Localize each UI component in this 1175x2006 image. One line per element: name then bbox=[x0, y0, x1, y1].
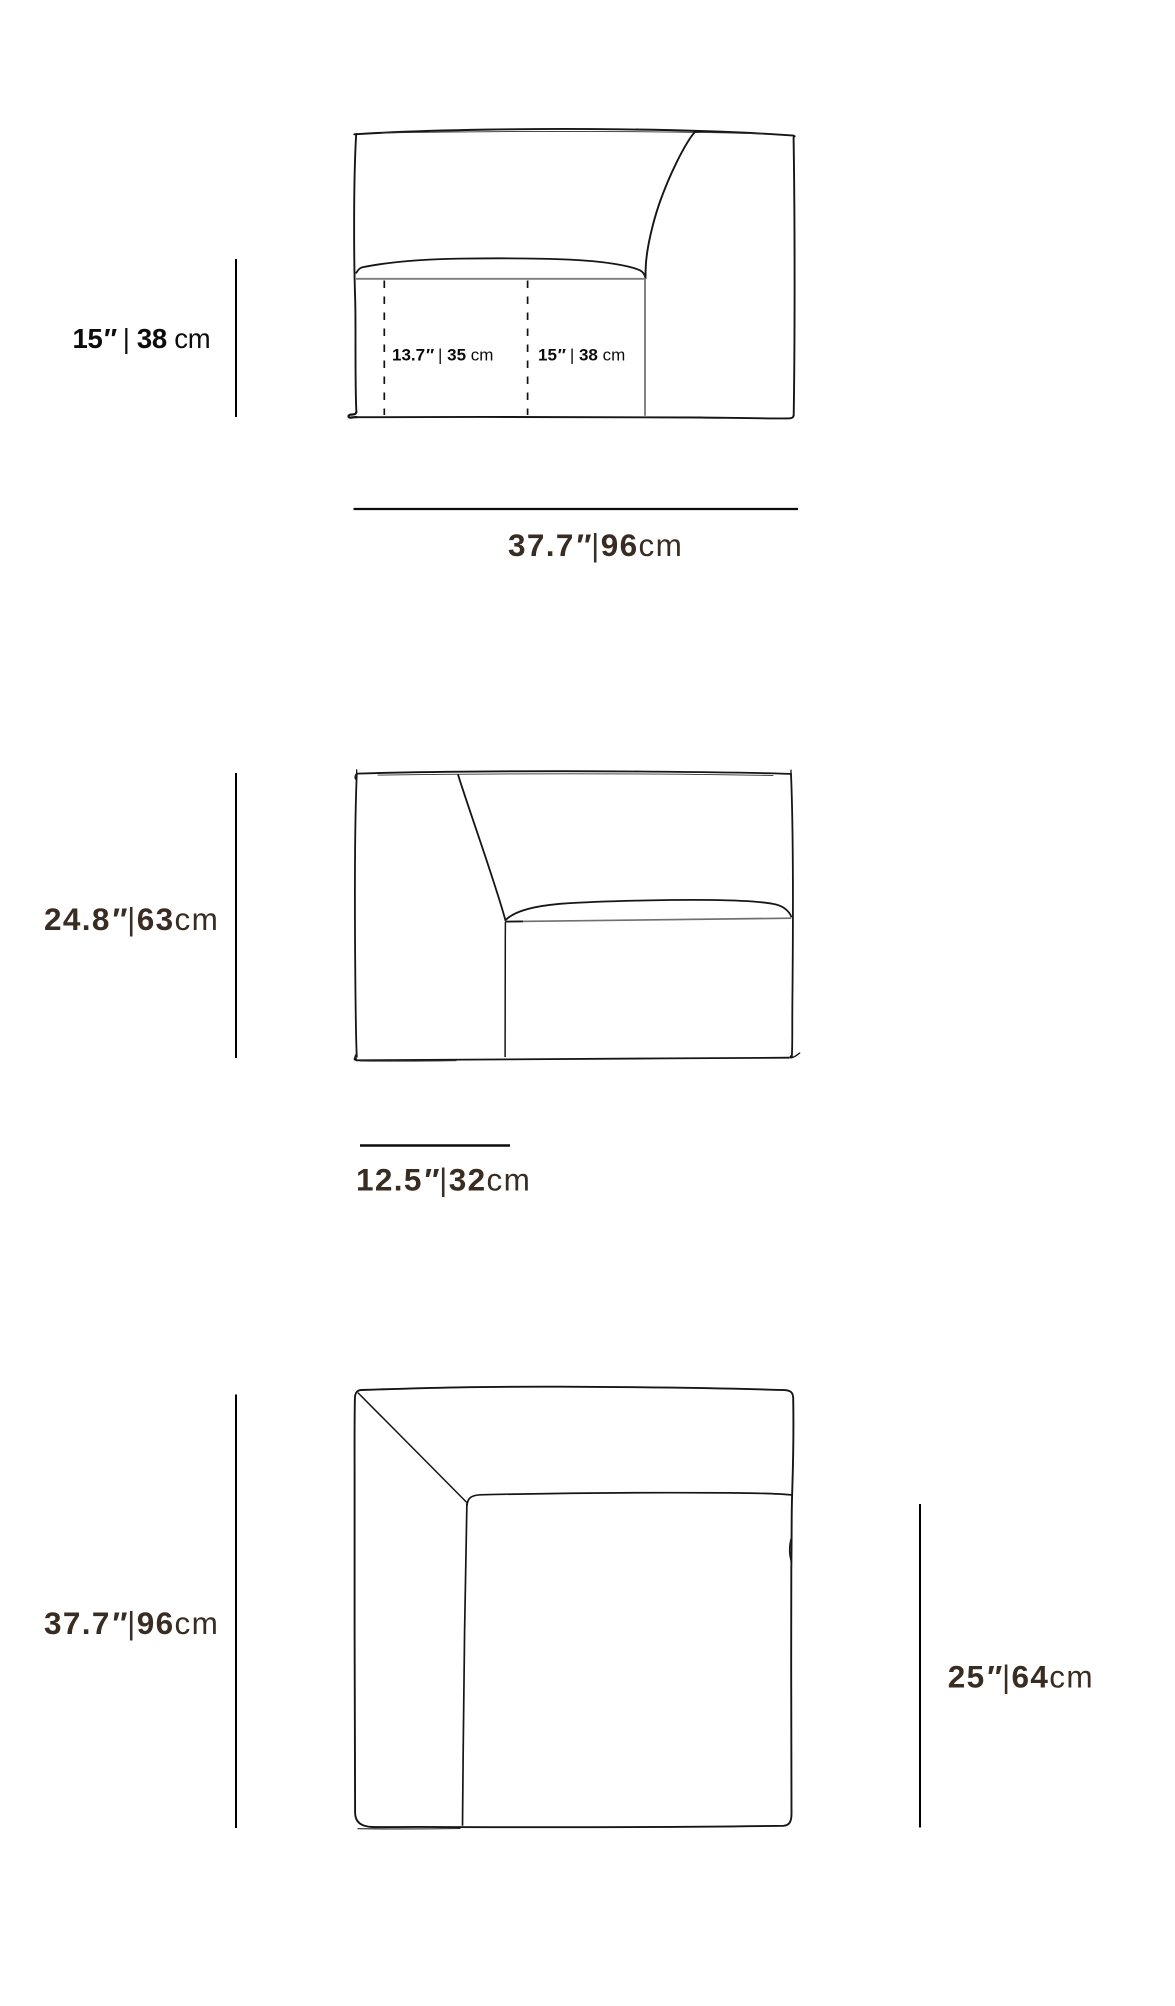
svg-text:37.7″|96cm: 37.7″|96cm bbox=[44, 1605, 219, 1641]
svg-text:13.7″ | 35 cm: 13.7″ | 35 cm bbox=[392, 346, 493, 365]
svg-text:24.8″|63cm: 24.8″|63cm bbox=[44, 901, 219, 937]
svg-text:15″ | 38 cm: 15″ | 38 cm bbox=[73, 323, 211, 354]
svg-text:25″|64cm: 25″|64cm bbox=[948, 1659, 1094, 1695]
svg-text:15″ | 38 cm: 15″ | 38 cm bbox=[538, 346, 625, 365]
svg-text:37.7″|96cm: 37.7″|96cm bbox=[508, 527, 683, 563]
svg-text:12.5″|32cm: 12.5″|32cm bbox=[356, 1162, 531, 1198]
